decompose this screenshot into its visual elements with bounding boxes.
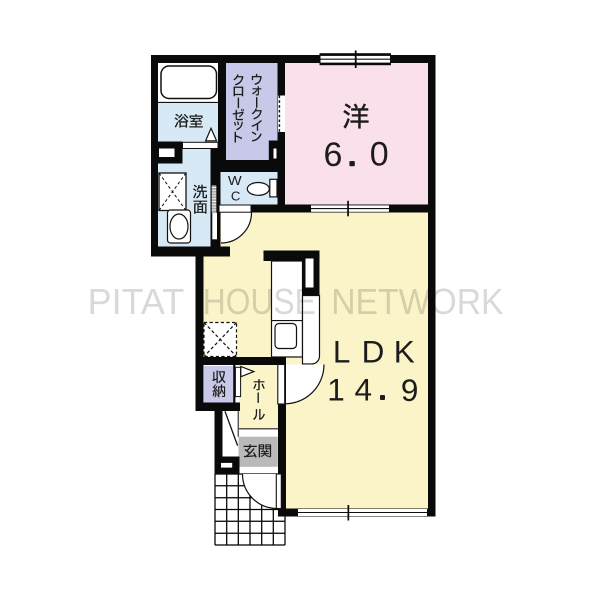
svg-text:D: D [362,334,385,370]
svg-text:9: 9 [401,372,419,408]
svg-text:6: 6 [323,136,342,174]
svg-text:K: K [394,334,415,370]
svg-text:HOUSE: HOUSE [203,282,316,322]
svg-text:C: C [231,189,241,204]
svg-text:NETWORK: NETWORK [331,282,503,322]
svg-text:L: L [333,334,351,370]
svg-text:4: 4 [355,371,373,407]
svg-text:PITAT: PITAT [88,281,185,322]
svg-text:W: W [228,174,242,188]
svg-text:0: 0 [370,136,389,174]
svg-text:1: 1 [327,371,345,407]
